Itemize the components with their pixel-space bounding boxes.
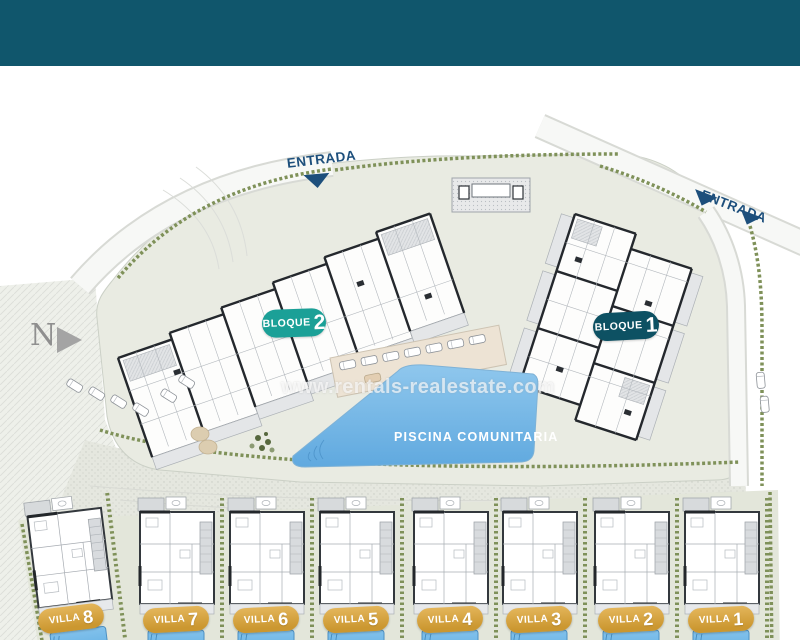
villa-4-name: VILLA (428, 614, 460, 627)
site-plan-page: N ENTRADA ENTRADA BLOQUE 2 BLOQUE 1 www.… (0, 0, 800, 640)
villa-7-name: VILLA (154, 614, 186, 627)
villa-1-number: 1 (733, 609, 744, 627)
villa-5-name: VILLA (334, 614, 366, 627)
watermark: www.rentals-realestate.com (281, 376, 555, 399)
villa-3-name: VILLA (517, 614, 549, 627)
villa-2-badge: VILLA 2 (597, 605, 664, 633)
villa-6-name: VILLA (244, 614, 276, 627)
villa-4-number: 4 (462, 609, 473, 627)
site-plan-graphic (0, 66, 800, 640)
villa-1-name: VILLA (699, 614, 731, 627)
header-bar (0, 0, 800, 66)
villa-2-number: 2 (643, 609, 654, 627)
villa-7-badge: VILLA 7 (142, 605, 209, 633)
bloque-1-number: 1 (645, 314, 658, 336)
bloque-2-badge: BLOQUE 2 (262, 308, 327, 338)
villa-1-badge: VILLA 1 (687, 605, 754, 633)
bloque-2-name: BLOQUE (262, 316, 310, 330)
villa-8-name: VILLA (48, 612, 80, 627)
villa-3-number: 3 (551, 609, 562, 627)
villa-5-number: 5 (368, 609, 379, 627)
community-pool-label: PISCINA COMUNITARIA (394, 430, 558, 444)
villa-4-badge: VILLA 4 (416, 605, 483, 633)
entrance-plaza (452, 178, 530, 212)
villa-5-badge: VILLA 5 (322, 605, 389, 633)
north-indicator-label: N (30, 318, 56, 353)
bloque-1-badge: BLOQUE 1 (592, 310, 659, 341)
villa-6-number: 6 (278, 609, 289, 627)
villa-6-badge: VILLA 6 (232, 605, 299, 633)
bloque-1-name: BLOQUE (594, 319, 642, 333)
villa-7-number: 7 (188, 609, 199, 627)
bloque-2-number: 2 (313, 311, 325, 332)
villa-2-name: VILLA (609, 614, 641, 627)
villa-8-number: 8 (82, 607, 94, 626)
entrance-top-arrow-icon (303, 173, 330, 189)
north-arrow-icon (57, 327, 82, 353)
villa-3-badge: VILLA 3 (505, 605, 572, 633)
